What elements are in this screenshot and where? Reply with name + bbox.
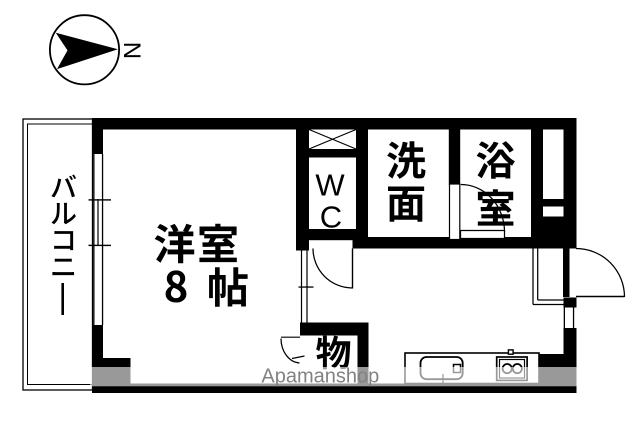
svg-text:Apamanshop: Apamanshop — [261, 365, 379, 387]
svg-text:C: C — [320, 200, 342, 235]
svg-text:W: W — [315, 168, 345, 203]
svg-text:N: N — [120, 42, 147, 59]
